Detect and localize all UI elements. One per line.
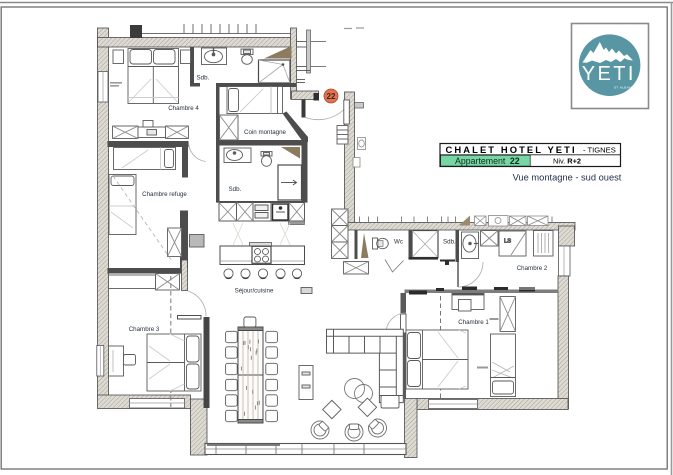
svg-text:Sdb.: Sdb. bbox=[229, 186, 242, 193]
svg-text:Sdb.: Sdb. bbox=[443, 239, 456, 246]
svg-text:Chambre refuge: Chambre refuge bbox=[142, 191, 187, 198]
svg-text:LS: LS bbox=[504, 239, 511, 245]
svg-text:Coin montagne: Coin montagne bbox=[244, 129, 287, 136]
svg-text:Chambre 4: Chambre 4 bbox=[168, 105, 199, 112]
svg-text:Chambre 1: Chambre 1 bbox=[458, 319, 489, 326]
svg-text:Sdb.: Sdb. bbox=[197, 75, 210, 82]
svg-text:YETI: YETI bbox=[582, 63, 636, 85]
svg-text:ST ALBANAIS: ST ALBANAIS bbox=[614, 86, 638, 90]
svg-text:CHALET HOTEL YETI: CHALET HOTEL YETI bbox=[446, 144, 577, 155]
svg-text:Vue montagne - sud ouest: Vue montagne - sud ouest bbox=[513, 173, 622, 183]
svg-text:Chambre 3: Chambre 3 bbox=[129, 326, 160, 333]
svg-text:Appartement 22: Appartement 22 bbox=[455, 156, 520, 166]
svg-text:Wc: Wc bbox=[394, 239, 403, 246]
svg-text:- TIGNES: - TIGNES bbox=[583, 146, 616, 155]
svg-text:Chambre 2: Chambre 2 bbox=[517, 265, 548, 272]
svg-text:Niv. R+2: Niv. R+2 bbox=[553, 156, 581, 165]
svg-text:Séjour/cuisine: Séjour/cuisine bbox=[235, 288, 274, 295]
svg-text:22: 22 bbox=[327, 92, 336, 101]
